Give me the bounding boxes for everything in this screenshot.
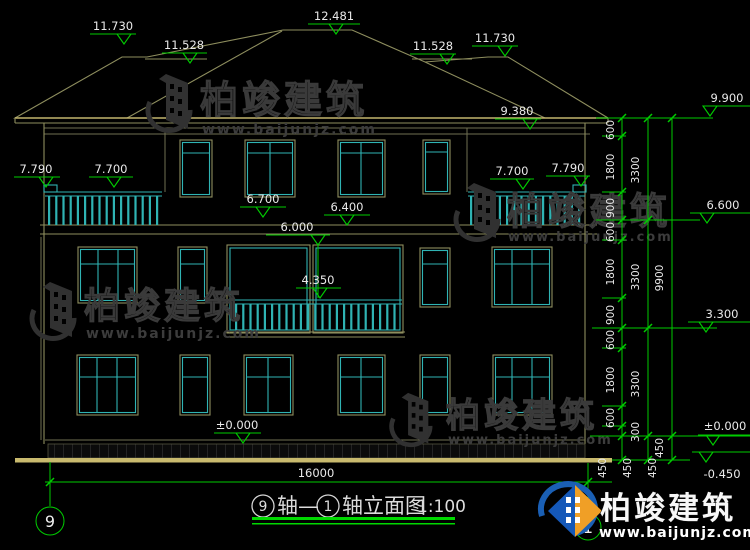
- svg-text:12.481: 12.481: [314, 9, 354, 23]
- brand-name: 柏竣建筑: [600, 491, 736, 527]
- watermark-name: 柏竣建筑: [200, 78, 368, 122]
- dim-label: 1800: [605, 367, 617, 394]
- dim-label: 3300: [630, 371, 642, 398]
- dim-label: 600: [605, 408, 617, 428]
- dim-label: 600: [605, 330, 617, 350]
- svg-text:7.700: 7.700: [496, 164, 529, 178]
- svg-text:9: 9: [259, 499, 268, 515]
- brand-footer: 柏竣建筑 www.baijunjz.com: [541, 484, 750, 541]
- svg-text:6.000: 6.000: [281, 220, 314, 234]
- watermark-url: www.baijunjz.com: [448, 433, 613, 448]
- svg-text:11.730: 11.730: [93, 19, 133, 33]
- title-text: 轴—: [277, 494, 319, 518]
- svg-text:6.400: 6.400: [331, 200, 364, 214]
- svg-text:6.700: 6.700: [247, 192, 280, 206]
- title-underline-thick: [252, 517, 455, 520]
- watermark-name: 柏竣建筑: [446, 396, 598, 436]
- svg-text:4.350: 4.350: [302, 273, 335, 287]
- svg-text:9: 9: [45, 512, 55, 531]
- dim-label: 450: [654, 438, 666, 458]
- svg-text:3.300: 3.300: [706, 307, 739, 321]
- dim-label: 600: [605, 120, 617, 140]
- svg-text:11.528: 11.528: [413, 39, 453, 53]
- svg-text:-0.450: -0.450: [703, 467, 740, 481]
- title-underline-thin: [252, 523, 455, 525]
- dim-label: 1800: [605, 154, 617, 181]
- bottom-dim-label: 16000: [298, 466, 335, 480]
- watermark-url: www.baijunjz.com: [86, 326, 261, 342]
- dim-label: 3300: [630, 157, 642, 184]
- svg-text:6.600: 6.600: [707, 198, 740, 212]
- watermark-right-middle: 柏竣建筑 www.baijunjz.com: [456, 183, 673, 245]
- svg-text:1: 1: [324, 499, 333, 515]
- title-scale: 1:100: [417, 497, 466, 517]
- svg-text:±0.000: ±0.000: [216, 418, 259, 432]
- dim-label: 9900: [654, 265, 666, 292]
- dim-label: 600: [605, 222, 617, 242]
- svg-text:11.730: 11.730: [475, 31, 515, 45]
- watermark-left-middle: 柏竣建筑 www.baijunjz.com: [32, 282, 261, 342]
- dim-label: 900: [605, 305, 617, 325]
- dim-label: 900: [605, 198, 617, 218]
- drawing-title: 9 轴— 1 轴立面图 1:100: [252, 494, 466, 525]
- dim-label: 300: [630, 422, 642, 442]
- svg-text:±0.000: ±0.000: [704, 419, 747, 433]
- dim-label: 450: [647, 458, 659, 478]
- svg-text:7.790: 7.790: [552, 161, 585, 175]
- dim-label: 450: [597, 458, 609, 478]
- dim-label: 1800: [605, 259, 617, 286]
- svg-text:9.900: 9.900: [711, 91, 744, 105]
- elevation-canvas: 柏竣建筑 www.baijunjz.com 柏竣建筑 www.baijunjz.…: [0, 0, 750, 550]
- watermark-name: 柏竣建筑: [84, 286, 244, 327]
- svg-text:11.528: 11.528: [164, 38, 204, 52]
- brand-url: www.baijunjz.com: [599, 525, 750, 541]
- dim-label: 450: [622, 458, 634, 478]
- watermark-name: 柏竣建筑: [507, 190, 671, 233]
- ground-line: [15, 458, 612, 463]
- watermark-url: www.baijunjz.com: [202, 122, 377, 138]
- svg-text:9.380: 9.380: [501, 104, 534, 118]
- cad-elevation-drawing: 柏竣建筑 www.baijunjz.com 柏竣建筑 www.baijunjz.…: [0, 0, 750, 550]
- dim-label: 3300: [630, 264, 642, 291]
- svg-text:7.700: 7.700: [95, 162, 128, 176]
- watermark-center-lower: 柏竣建筑 www.baijunjz.com: [392, 393, 613, 448]
- svg-text:7.790: 7.790: [20, 162, 53, 176]
- watermark-top-center: 柏竣建筑 www.baijunjz.com: [148, 74, 377, 138]
- title-text: 轴立面图: [342, 494, 426, 518]
